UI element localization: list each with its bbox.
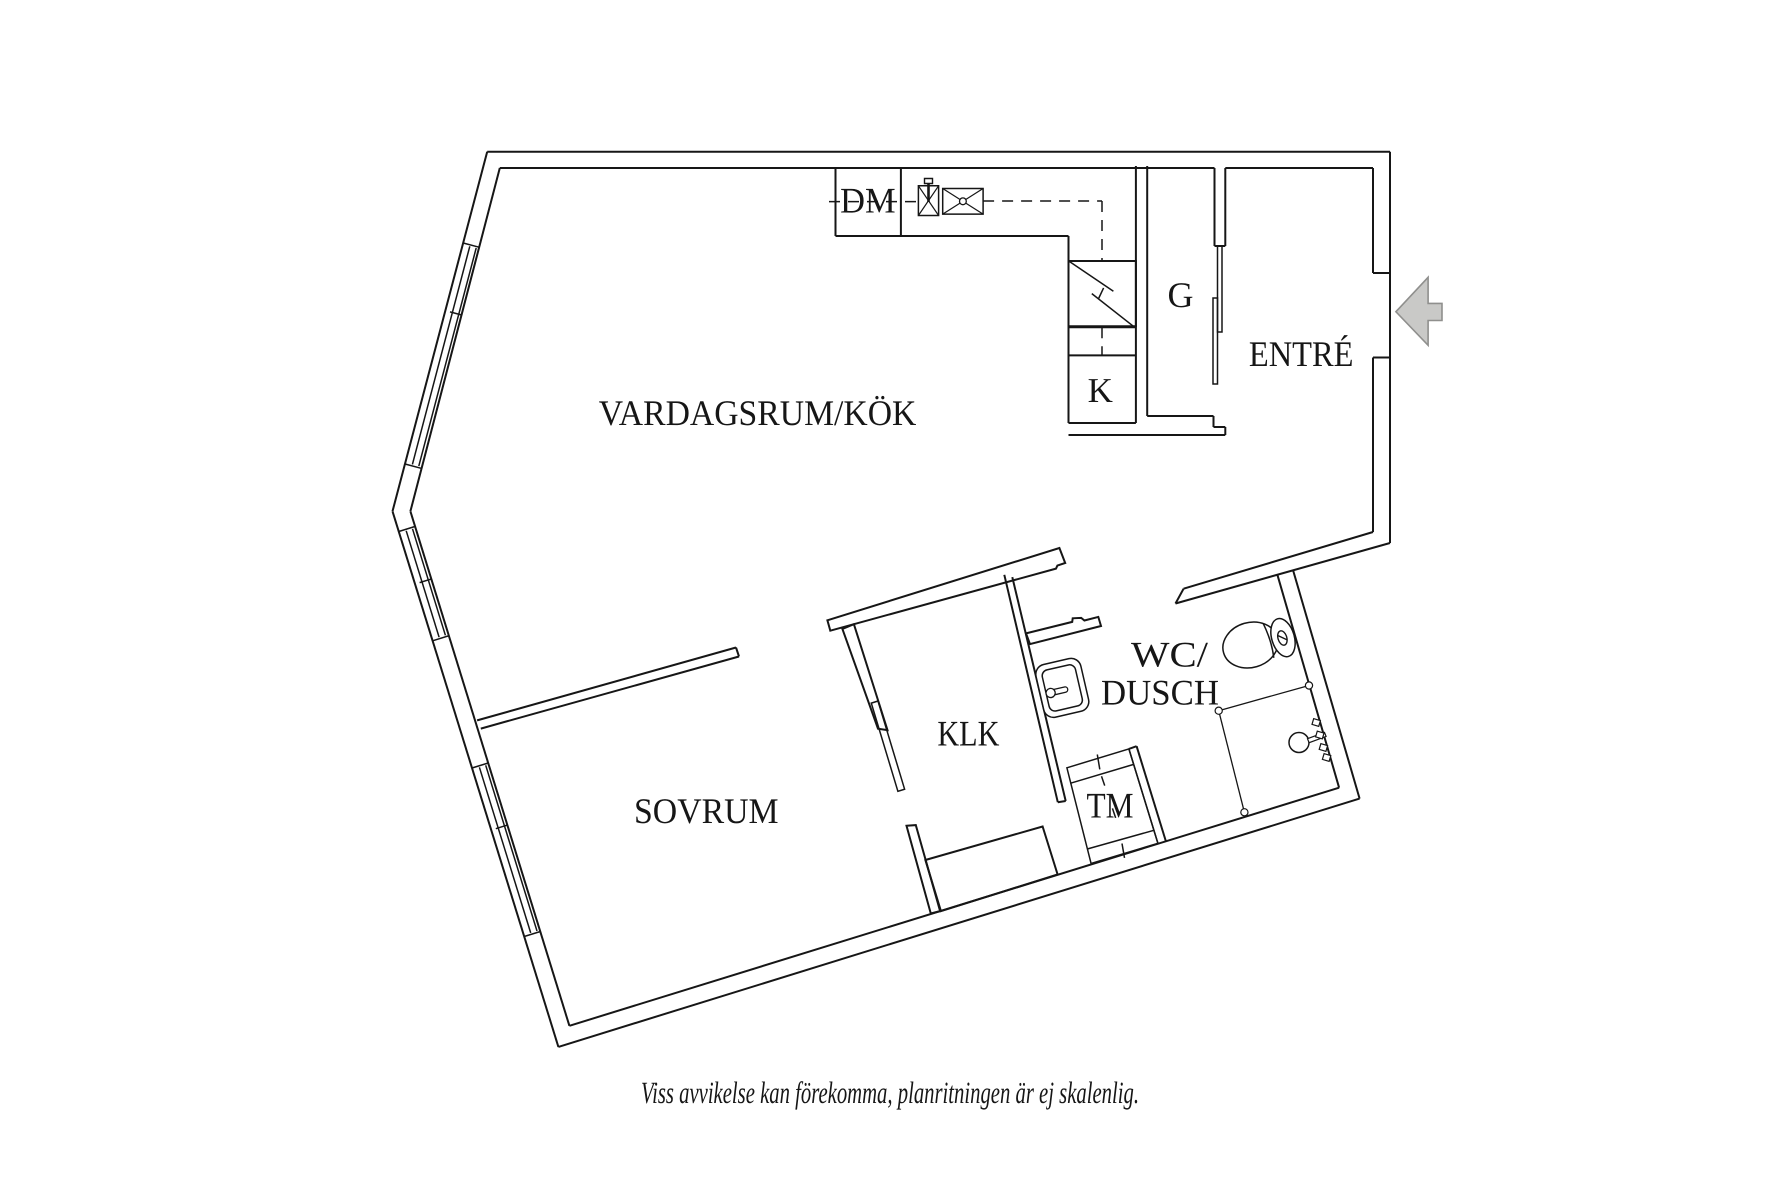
- svg-text:G: G: [1168, 275, 1194, 315]
- svg-text:VARDAGSRUM/KÖK: VARDAGSRUM/KÖK: [599, 393, 917, 433]
- svg-text:K: K: [1088, 371, 1113, 410]
- svg-text:DUSCH: DUSCH: [1101, 673, 1219, 713]
- svg-text:ENTRÉ: ENTRÉ: [1249, 334, 1354, 374]
- svg-text:TM: TM: [1087, 786, 1134, 826]
- svg-text:WC/: WC/: [1131, 635, 1208, 675]
- svg-text:DM: DM: [840, 181, 896, 221]
- svg-text:SOVRUM: SOVRUM: [634, 791, 779, 831]
- svg-text:KLK: KLK: [937, 714, 999, 754]
- svg-text:Viss avvikelse kan förekomma,: Viss avvikelse kan förekomma, planritnin…: [641, 1075, 1139, 1110]
